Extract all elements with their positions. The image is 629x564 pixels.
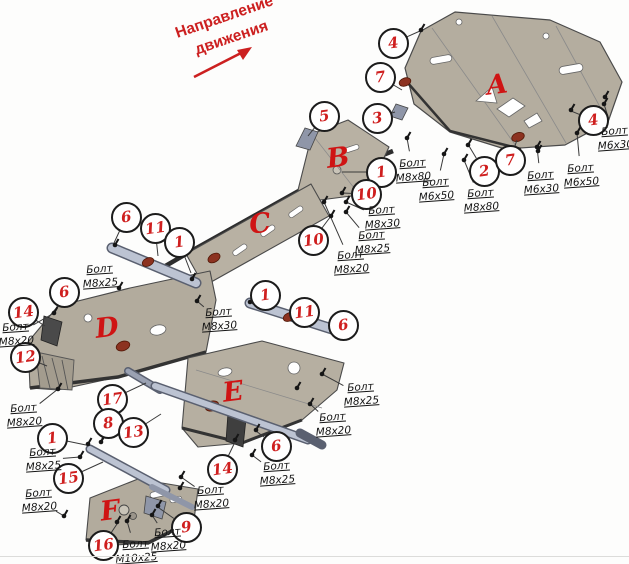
bolt-label: БолтМ6х30 [596,124,629,154]
callout-number: 10 [301,230,324,251]
annotations-layer: 473511010274611161412111617813115169614Б… [0,0,629,564]
bolt-label-line2: М8х20 [193,497,229,513]
callout-number: 3 [371,108,384,127]
bolt-label-line2: М8х20 [315,424,351,440]
callout-4: 4 [378,28,409,59]
bolt-label-line2: М8х80 [395,170,431,186]
callout-number: 14 [210,459,233,480]
bolt-label-line2: М8х30 [201,319,237,335]
bolt-label-line2: М8х25 [343,394,379,410]
callout-7: 7 [365,62,396,93]
callout-number: 12 [13,347,36,368]
callout-6: 6 [111,202,142,233]
bolt-label-line2: М6х30 [523,182,559,198]
installation-diagram: 473511010274611161412111617813115169614Б… [0,0,629,564]
bolt-label: БолтМ8х20 [0,320,35,350]
bolt-label-line2: М8х20 [150,539,186,555]
callout-number: 6 [270,436,283,455]
bolt-label: БолтМ8х25 [24,445,61,475]
callout-14: 14 [207,454,238,485]
callout-number: 11 [292,302,315,323]
callout-number: 4 [387,33,400,52]
callout-number: 17 [100,389,123,410]
callout-number: 13 [121,422,144,443]
bolt-label: БолтМ8х25 [81,262,118,292]
callout-number: 10 [354,184,377,205]
callout-5: 5 [309,101,340,132]
callout-number: 1 [375,162,388,181]
bolt-label: БолтМ6х30 [522,168,559,198]
callout-number: 7 [374,67,387,86]
callout-6: 6 [49,277,80,308]
callout-number: 1 [173,232,186,251]
bolt-label-line2: М8х25 [82,276,118,292]
bolt-label-line2: М6х30 [597,138,629,154]
callout-1: 1 [164,227,195,258]
part-letter-C: C [247,207,272,240]
callout-13: 13 [118,417,149,448]
bolt-label: БолтМ6х50 [562,161,599,191]
bolt-label: БолтМ8х20 [192,483,229,513]
callout-6: 6 [328,310,359,341]
bolt-label-line2: М6х50 [418,189,454,205]
callout-number: 6 [120,207,133,226]
callout-6: 6 [261,431,292,462]
callout-11: 11 [289,297,320,328]
bolt-label: БолтМ8х20 [5,401,42,431]
callout-number: 5 [318,106,331,125]
bolt-label-line2: М8х20 [333,262,369,278]
bolt-label-line2: М8х20 [0,334,35,350]
callout-number: 7 [504,150,517,169]
callout-number: 11 [143,218,166,239]
part-letter-A: A [485,68,510,101]
callout-number: 1 [259,285,272,304]
callout-1: 1 [250,280,281,311]
callout-3: 3 [362,103,393,134]
bolt-label: БолтМ8х25 [258,459,295,489]
bolt-label-line2: М8х25 [259,473,295,489]
bolt-label: БолтМ8х20 [332,248,369,278]
bolt-label-line2: М6х50 [563,175,599,191]
bolt-label: БолтМ8х20 [149,525,186,555]
bolt-label: БолтМ8х80 [462,186,499,216]
bolt-label-line2: М8х25 [25,459,61,475]
bolt-label-line2: М8х80 [463,200,499,216]
bolt-label: БолтМ8х25 [342,380,379,410]
part-letter-F: F [99,494,122,527]
part-letter-D: D [93,311,120,345]
bolt-label: БолтМ8х80 [394,156,431,186]
bolt-label-line2: М8х20 [6,415,42,431]
bolt-label: БолтМ8х20 [20,486,57,516]
callout-10: 10 [298,225,329,256]
bolt-label: БолтМ8х30 [200,305,237,335]
bolt-label-line2: М8х20 [21,500,57,516]
callout-number: 6 [337,315,350,334]
bolt-label: БолтМ8х20 [314,410,351,440]
bottom-divider [0,556,629,557]
callout-7: 7 [495,145,526,176]
callout-number: 16 [91,535,114,556]
callout-number: 2 [478,161,491,180]
part-letter-E: E [221,375,245,408]
part-letter-B: B [325,141,351,175]
callout-number: 8 [102,413,115,432]
callout-number: 6 [58,282,71,301]
